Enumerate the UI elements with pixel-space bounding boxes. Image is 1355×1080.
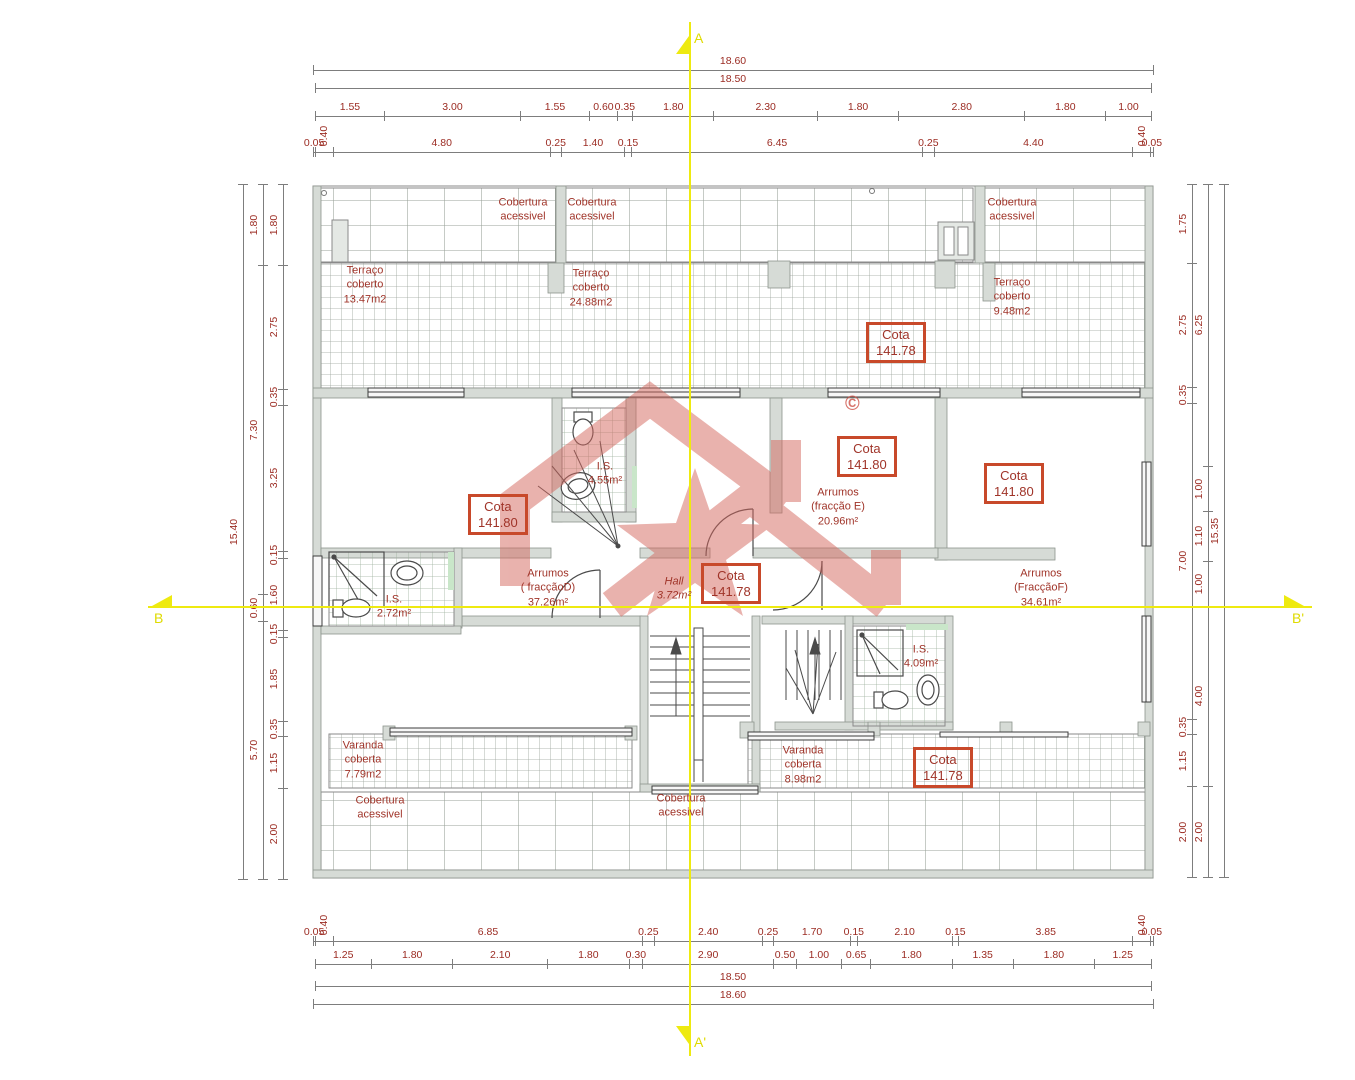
dim-label: 2.10	[490, 949, 510, 961]
staircase-main	[650, 628, 750, 782]
balcony-and-bottom-roof-grids	[321, 734, 1145, 870]
dim-label: 2.00	[1193, 822, 1205, 842]
dim-label: 1.40	[583, 137, 603, 149]
dim-tick	[278, 184, 288, 185]
dim-label: 2.75	[268, 317, 280, 337]
dim-tick	[1153, 999, 1154, 1009]
dim-line	[315, 88, 1151, 89]
room-label-arrumos-f: Arrumos (FracçãoF) 34.61m²	[1014, 567, 1068, 610]
dim-label: 1.80	[248, 214, 260, 234]
staircase-secondary	[786, 630, 841, 714]
dim-label: 1.00	[1193, 573, 1205, 593]
dim-label: 3.00	[442, 101, 462, 113]
dim-label: 2.80	[951, 101, 971, 113]
dim-label: 6.85	[478, 926, 498, 938]
dim-tick	[1187, 786, 1197, 787]
cota-value: 141.78	[711, 584, 751, 600]
dim-label: 0.35	[615, 101, 635, 113]
room-label-is-center: I.S. 4.55m²	[588, 460, 622, 489]
roof-skylight	[332, 220, 348, 262]
room-label-terraco-mid: Terraço coberto 24.88m2	[570, 267, 613, 310]
dim-tick	[258, 879, 268, 880]
dim-label: 1.60	[268, 584, 280, 604]
dim-tick	[1151, 959, 1152, 969]
dim-tick	[315, 959, 316, 969]
dim-line	[313, 941, 1153, 942]
dim-label: 2.30	[755, 101, 775, 113]
dim-tick	[796, 959, 797, 969]
dim-label: 1.10	[1193, 526, 1205, 546]
axis-label-a: A	[694, 30, 703, 46]
floorplan-canvas: 18.6018.501.553.001.550.600.351.802.301.…	[0, 0, 1355, 1080]
dim-label: 0.15	[268, 545, 280, 565]
dim-label: 4.80	[431, 137, 451, 149]
dim-line	[313, 70, 1153, 71]
dim-tick	[1203, 786, 1213, 787]
dim-tick	[1132, 147, 1133, 157]
toilet-bowl	[342, 599, 370, 617]
dim-tick	[841, 959, 842, 969]
dim-label: 1.70	[802, 926, 822, 938]
dim-tick	[1203, 877, 1213, 878]
dim-label: 2.90	[698, 949, 718, 961]
dim-label: 1.80	[268, 214, 280, 234]
dim-tick	[1203, 466, 1213, 467]
dim-tick	[315, 981, 316, 991]
dim-label: 5.70	[248, 740, 260, 760]
dim-tick	[258, 184, 268, 185]
dim-label: 1.55	[340, 101, 360, 113]
dim-label: 0.35	[1177, 385, 1189, 405]
dim-tick	[278, 788, 288, 789]
dim-tick	[258, 265, 268, 266]
room-label-arrumos-e: Arrumos (fracção E) 20.96m²	[811, 486, 865, 529]
dim-label: 0.40	[318, 915, 330, 935]
dim-tick	[333, 147, 334, 157]
axis-label-b: B	[154, 610, 163, 626]
dim-tick	[1187, 263, 1197, 264]
dim-label: 2.40	[698, 926, 718, 938]
room-label-is-right: I.S. 4.09m²	[904, 643, 938, 672]
dim-label: 0.35	[268, 387, 280, 407]
dim-label: 2.00	[1177, 822, 1189, 842]
dim-tick	[547, 959, 548, 969]
dim-label: 1.80	[901, 949, 921, 961]
dim-label: 4.00	[1193, 686, 1205, 706]
room-label-arrumos-d: Arrumos ( fracçãoD) 37.26m²	[521, 567, 575, 610]
dim-label: 1.80	[402, 949, 422, 961]
dim-label: 1.15	[268, 753, 280, 773]
cota-value: 141.78	[923, 768, 963, 784]
room-label-cobertura-top-mid: Cobertura acessivel	[568, 196, 617, 225]
cota-value: 141.80	[847, 457, 887, 473]
dim-label: 1.55	[545, 101, 565, 113]
dim-label: 0.50	[775, 949, 795, 961]
dim-tick	[258, 594, 268, 595]
dim-label: 1.15	[1177, 751, 1189, 771]
dim-tick	[1203, 511, 1213, 512]
dim-tick	[1013, 959, 1014, 969]
dim-label: 0.25	[546, 137, 566, 149]
dim-line	[315, 964, 1151, 965]
dim-tick	[371, 959, 372, 969]
dim-label: 6.45	[767, 137, 787, 149]
dim-label: 1.00	[1193, 479, 1205, 499]
toilet-bowl	[882, 691, 908, 709]
dim-label: 0.15	[268, 624, 280, 644]
dim-label: 1.00	[1118, 101, 1138, 113]
room-label-terraco-left: Terraço coberto 13.47m2	[344, 264, 387, 307]
dim-tick	[952, 959, 953, 969]
dim-line	[1224, 184, 1225, 877]
dim-label: 0.25	[638, 926, 658, 938]
dim-label: 0.25	[918, 137, 938, 149]
dim-label: 18.50	[720, 73, 746, 85]
dim-label: 1.80	[1055, 101, 1075, 113]
dim-label: 0.40	[318, 126, 330, 146]
section-axis-a-line	[689, 22, 691, 1056]
axis-label-b-prime: B'	[1292, 610, 1304, 626]
dim-label: 18.60	[720, 55, 746, 67]
dim-label: 15.40	[228, 518, 240, 544]
dim-label: 18.50	[720, 971, 746, 983]
dim-label: 3.25	[268, 468, 280, 488]
axis-label-a-prime: A'	[694, 1034, 706, 1050]
dim-line	[315, 986, 1151, 987]
dim-tick	[315, 111, 316, 121]
dim-label: 1.80	[578, 949, 598, 961]
dim-label: 6.25	[1193, 315, 1205, 335]
dim-label: 0.35	[1177, 717, 1189, 737]
dim-tick	[1094, 959, 1095, 969]
dim-tick	[278, 879, 288, 880]
dim-tick	[1219, 184, 1229, 185]
dim-line	[243, 184, 244, 879]
room-label-cobertura-bottom-mid: Cobertura acessivel	[657, 792, 706, 821]
dim-tick	[313, 65, 314, 75]
dim-label: 7.00	[1177, 551, 1189, 571]
room-label-cobertura-bottom-left: Cobertura acessivel	[356, 794, 405, 823]
dim-tick	[1187, 184, 1197, 185]
dim-tick	[589, 111, 590, 121]
dim-tick	[384, 111, 385, 121]
dim-label: 1.80	[848, 101, 868, 113]
cota-value: 141.80	[994, 484, 1034, 500]
dim-label: 1.25	[1113, 949, 1133, 961]
dim-tick	[315, 83, 316, 93]
dim-label: 15.35	[1209, 517, 1221, 543]
dim-tick	[1151, 83, 1152, 93]
dim-label: 0.15	[844, 926, 864, 938]
dim-tick	[452, 959, 453, 969]
dim-label: 0.30	[626, 949, 646, 961]
dim-tick	[520, 111, 521, 121]
dim-line	[313, 1004, 1153, 1005]
cota-word: Cota	[847, 441, 887, 457]
watermark-copyright-icon: ©	[845, 393, 860, 416]
cota-box-hall: Cota 141.78	[701, 563, 761, 604]
dim-label: 1.80	[1044, 949, 1064, 961]
dim-line	[315, 116, 1151, 117]
dim-tick	[1187, 877, 1197, 878]
cota-box-room-d: Cota 141.80	[468, 494, 528, 535]
dim-tick	[898, 111, 899, 121]
room-label-is-left: I.S. 2.72m²	[377, 593, 411, 622]
dim-label: 0.25	[758, 926, 778, 938]
dim-tick	[333, 936, 334, 946]
dim-label: 0.15	[618, 137, 638, 149]
dim-label: 18.60	[720, 989, 746, 1001]
dim-tick	[238, 184, 248, 185]
dim-label: 7.30	[248, 420, 260, 440]
dim-tick	[258, 621, 268, 622]
cota-box-varanda: Cota 141.78	[913, 747, 973, 788]
cota-word: Cota	[478, 499, 518, 515]
dim-tick	[278, 265, 288, 266]
dim-tick	[1132, 936, 1133, 946]
dim-label: 1.85	[268, 669, 280, 689]
cota-box-room-f: Cota 141.80	[984, 463, 1044, 504]
dim-label: 0.15	[945, 926, 965, 938]
dim-tick	[1153, 65, 1154, 75]
dim-label: 2.10	[894, 926, 914, 938]
cota-box-room-e: Cota 141.80	[837, 436, 897, 477]
dim-label: 1.00	[809, 949, 829, 961]
room-label-varanda-mid: Varanda coberta 8.98m2	[783, 744, 824, 787]
dim-tick	[238, 879, 248, 880]
dim-label: 2.75	[1177, 315, 1189, 335]
cota-box-terrace: Cota 141.78	[866, 322, 926, 363]
dim-line	[263, 184, 264, 879]
dim-label: 1.80	[663, 101, 683, 113]
section-axis-b-line	[148, 606, 1312, 608]
dim-label: 2.00	[268, 824, 280, 844]
dim-label: 0.05	[1142, 926, 1162, 938]
dim-label: 1.75	[1177, 213, 1189, 233]
cota-word: Cota	[711, 568, 751, 584]
dim-label: 1.35	[972, 949, 992, 961]
room-label-varanda-left: Varanda coberta 7.79m2	[343, 739, 384, 782]
cota-value: 141.78	[876, 343, 916, 359]
dim-tick	[1219, 877, 1229, 878]
cota-value: 141.80	[478, 515, 518, 531]
dim-label: 0.35	[268, 719, 280, 739]
dim-label: 0.60	[248, 598, 260, 618]
dim-tick	[313, 999, 314, 1009]
dim-label: 0.65	[846, 949, 866, 961]
dim-tick	[1151, 981, 1152, 991]
dim-line	[283, 184, 284, 879]
dim-tick	[1105, 111, 1106, 121]
dim-line	[313, 152, 1153, 153]
dim-tick	[713, 111, 714, 121]
dim-tick	[1024, 111, 1025, 121]
dim-label: 0.05	[1142, 137, 1162, 149]
dim-label: 0.60	[593, 101, 613, 113]
cota-word: Cota	[994, 468, 1034, 484]
cota-word: Cota	[876, 327, 916, 343]
room-label-cobertura-top-left: Cobertura acessivel	[499, 196, 548, 225]
roof-window	[938, 222, 974, 260]
room-label-terraco-right: Terraço coberto 9.48m2	[994, 276, 1031, 319]
dim-tick	[1151, 111, 1152, 121]
dim-label: 4.40	[1023, 137, 1043, 149]
cota-word: Cota	[923, 752, 963, 768]
dim-tick	[1203, 184, 1213, 185]
dim-label: 1.25	[333, 949, 353, 961]
floor-plan-drawing	[0, 0, 1355, 1080]
room-label-cobertura-top-right: Cobertura acessivel	[988, 196, 1037, 225]
dim-tick	[870, 959, 871, 969]
dim-label: 3.85	[1036, 926, 1056, 938]
dim-tick	[1203, 561, 1213, 562]
dim-tick	[817, 111, 818, 121]
room-label-hall: Hall 3.72m²	[657, 575, 691, 604]
